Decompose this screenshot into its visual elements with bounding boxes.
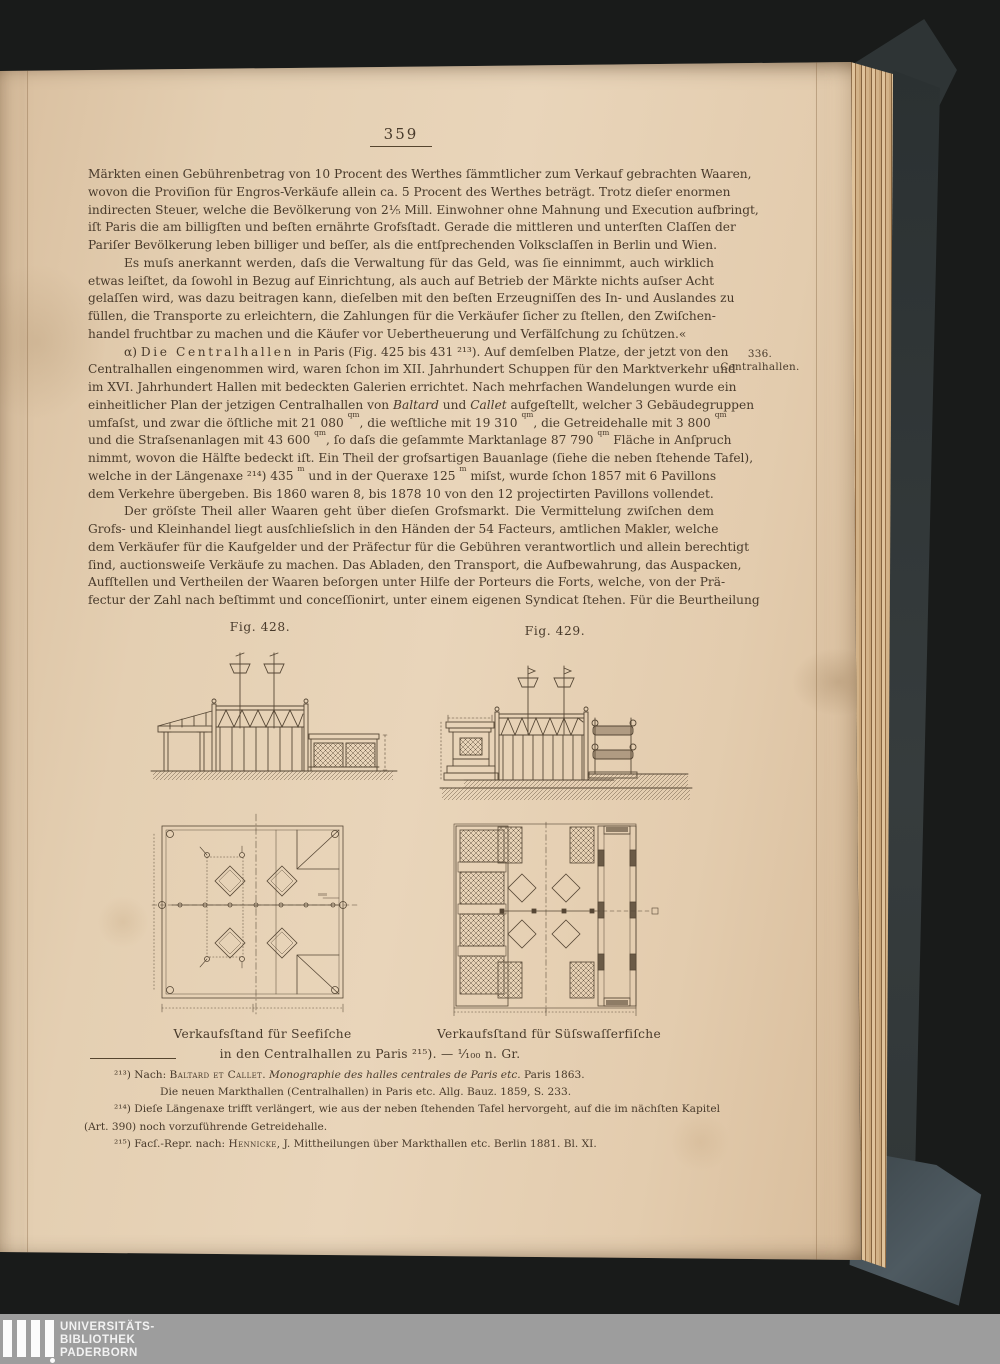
paragraph: Der gröſste Theil aller Waaren geht über… (88, 503, 714, 610)
footnote-rule (90, 1058, 176, 1059)
figure-label-428: Fig. 428. (228, 620, 292, 634)
library-name-line3: PADERBORN (60, 1347, 155, 1360)
page-number: 359 (88, 124, 714, 147)
margin-note-label: Centralhallen. (714, 361, 806, 374)
library-logo-icon (3, 1320, 59, 1360)
caption-shared: in den Centralhallen zu Paris ²¹⁵). — ¹⁄… (130, 1047, 610, 1061)
scanned-page: 359 Märkten einen Gebührenbetrag von 10 … (0, 62, 862, 1262)
body-text: Märkten einen Gebührenbetrag von 10 Proc… (88, 166, 714, 610)
caption-fig429: Verkaufsſtand für Süſswaſſerfiſche (424, 1027, 674, 1041)
fig428-plan-drawing (150, 812, 360, 1018)
margin-note: 336. Centralhallen. (714, 348, 806, 374)
footnotes: ²¹³) Nach: Baltard et Callet. Monographi… (84, 1067, 716, 1153)
paragraph: Märkten einen Gebührenbetrag von 10 Proc… (88, 166, 714, 255)
paragraph: Es muſs anerkannt werden, daſs die Verwa… (88, 255, 714, 344)
caption-fig428: Verkaufsſtand für Seefiſche (140, 1027, 385, 1041)
library-name: UNIVERSITÄTS- BIBLIOTHEK PADERBORN (60, 1321, 155, 1361)
paragraph: α) Die Centralhallen in Paris (Fig. 425 … (88, 344, 714, 504)
library-name-line2: BIBLIOTHEK (60, 1334, 155, 1347)
page-crease (27, 62, 28, 1262)
fig428-elevation-drawing (148, 648, 400, 790)
fig429-elevation-drawing (438, 662, 694, 806)
page-curl-line (816, 62, 817, 1262)
figure-label-429: Fig. 429. (523, 624, 587, 638)
book-scan-viewer: 359 Märkten einen Gebührenbetrag von 10 … (0, 0, 1000, 1364)
fig429-plan-drawing (446, 818, 662, 1016)
library-name-line1: UNIVERSITÄTS- (60, 1321, 155, 1334)
library-banner: UNIVERSITÄTS- BIBLIOTHEK PADERBORN (0, 1314, 1000, 1364)
margin-note-number: 336. (714, 348, 806, 361)
